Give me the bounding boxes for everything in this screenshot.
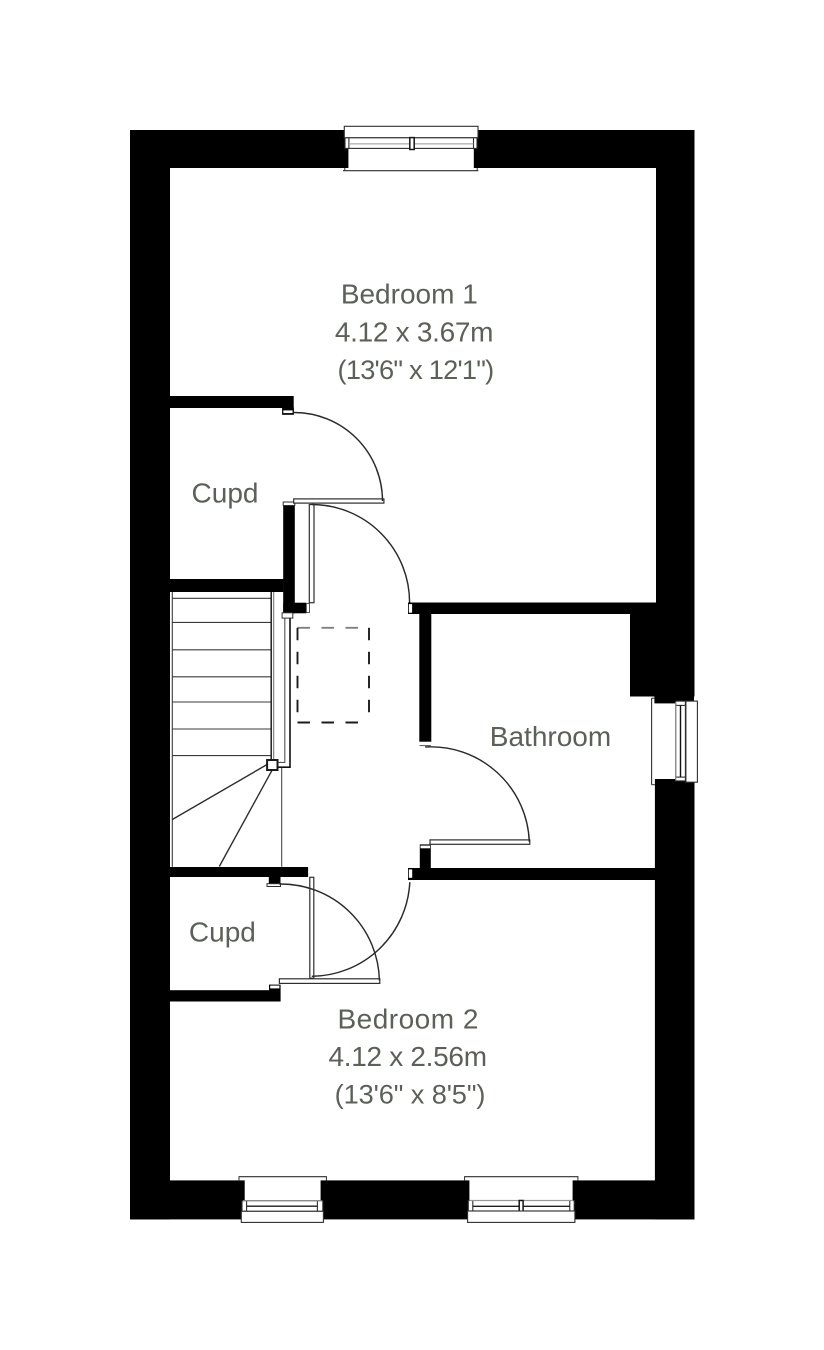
svg-text:Bedroom 2: Bedroom 2 xyxy=(337,1004,478,1035)
svg-text:(13'6" x 12'1"): (13'6" x 12'1") xyxy=(338,354,494,385)
svg-text:4.12 x 3.67m: 4.12 x 3.67m xyxy=(335,316,493,347)
svg-text:Cupd: Cupd xyxy=(189,916,256,947)
svg-text:Bathroom: Bathroom xyxy=(490,721,611,752)
svg-text:Bedroom 1: Bedroom 1 xyxy=(341,279,478,310)
svg-text:4.12 x 2.56m: 4.12 x 2.56m xyxy=(328,1041,486,1072)
svg-text:(13'6" x 8'5"): (13'6" x 8'5") xyxy=(335,1079,486,1110)
svg-text:Cupd: Cupd xyxy=(192,478,259,509)
